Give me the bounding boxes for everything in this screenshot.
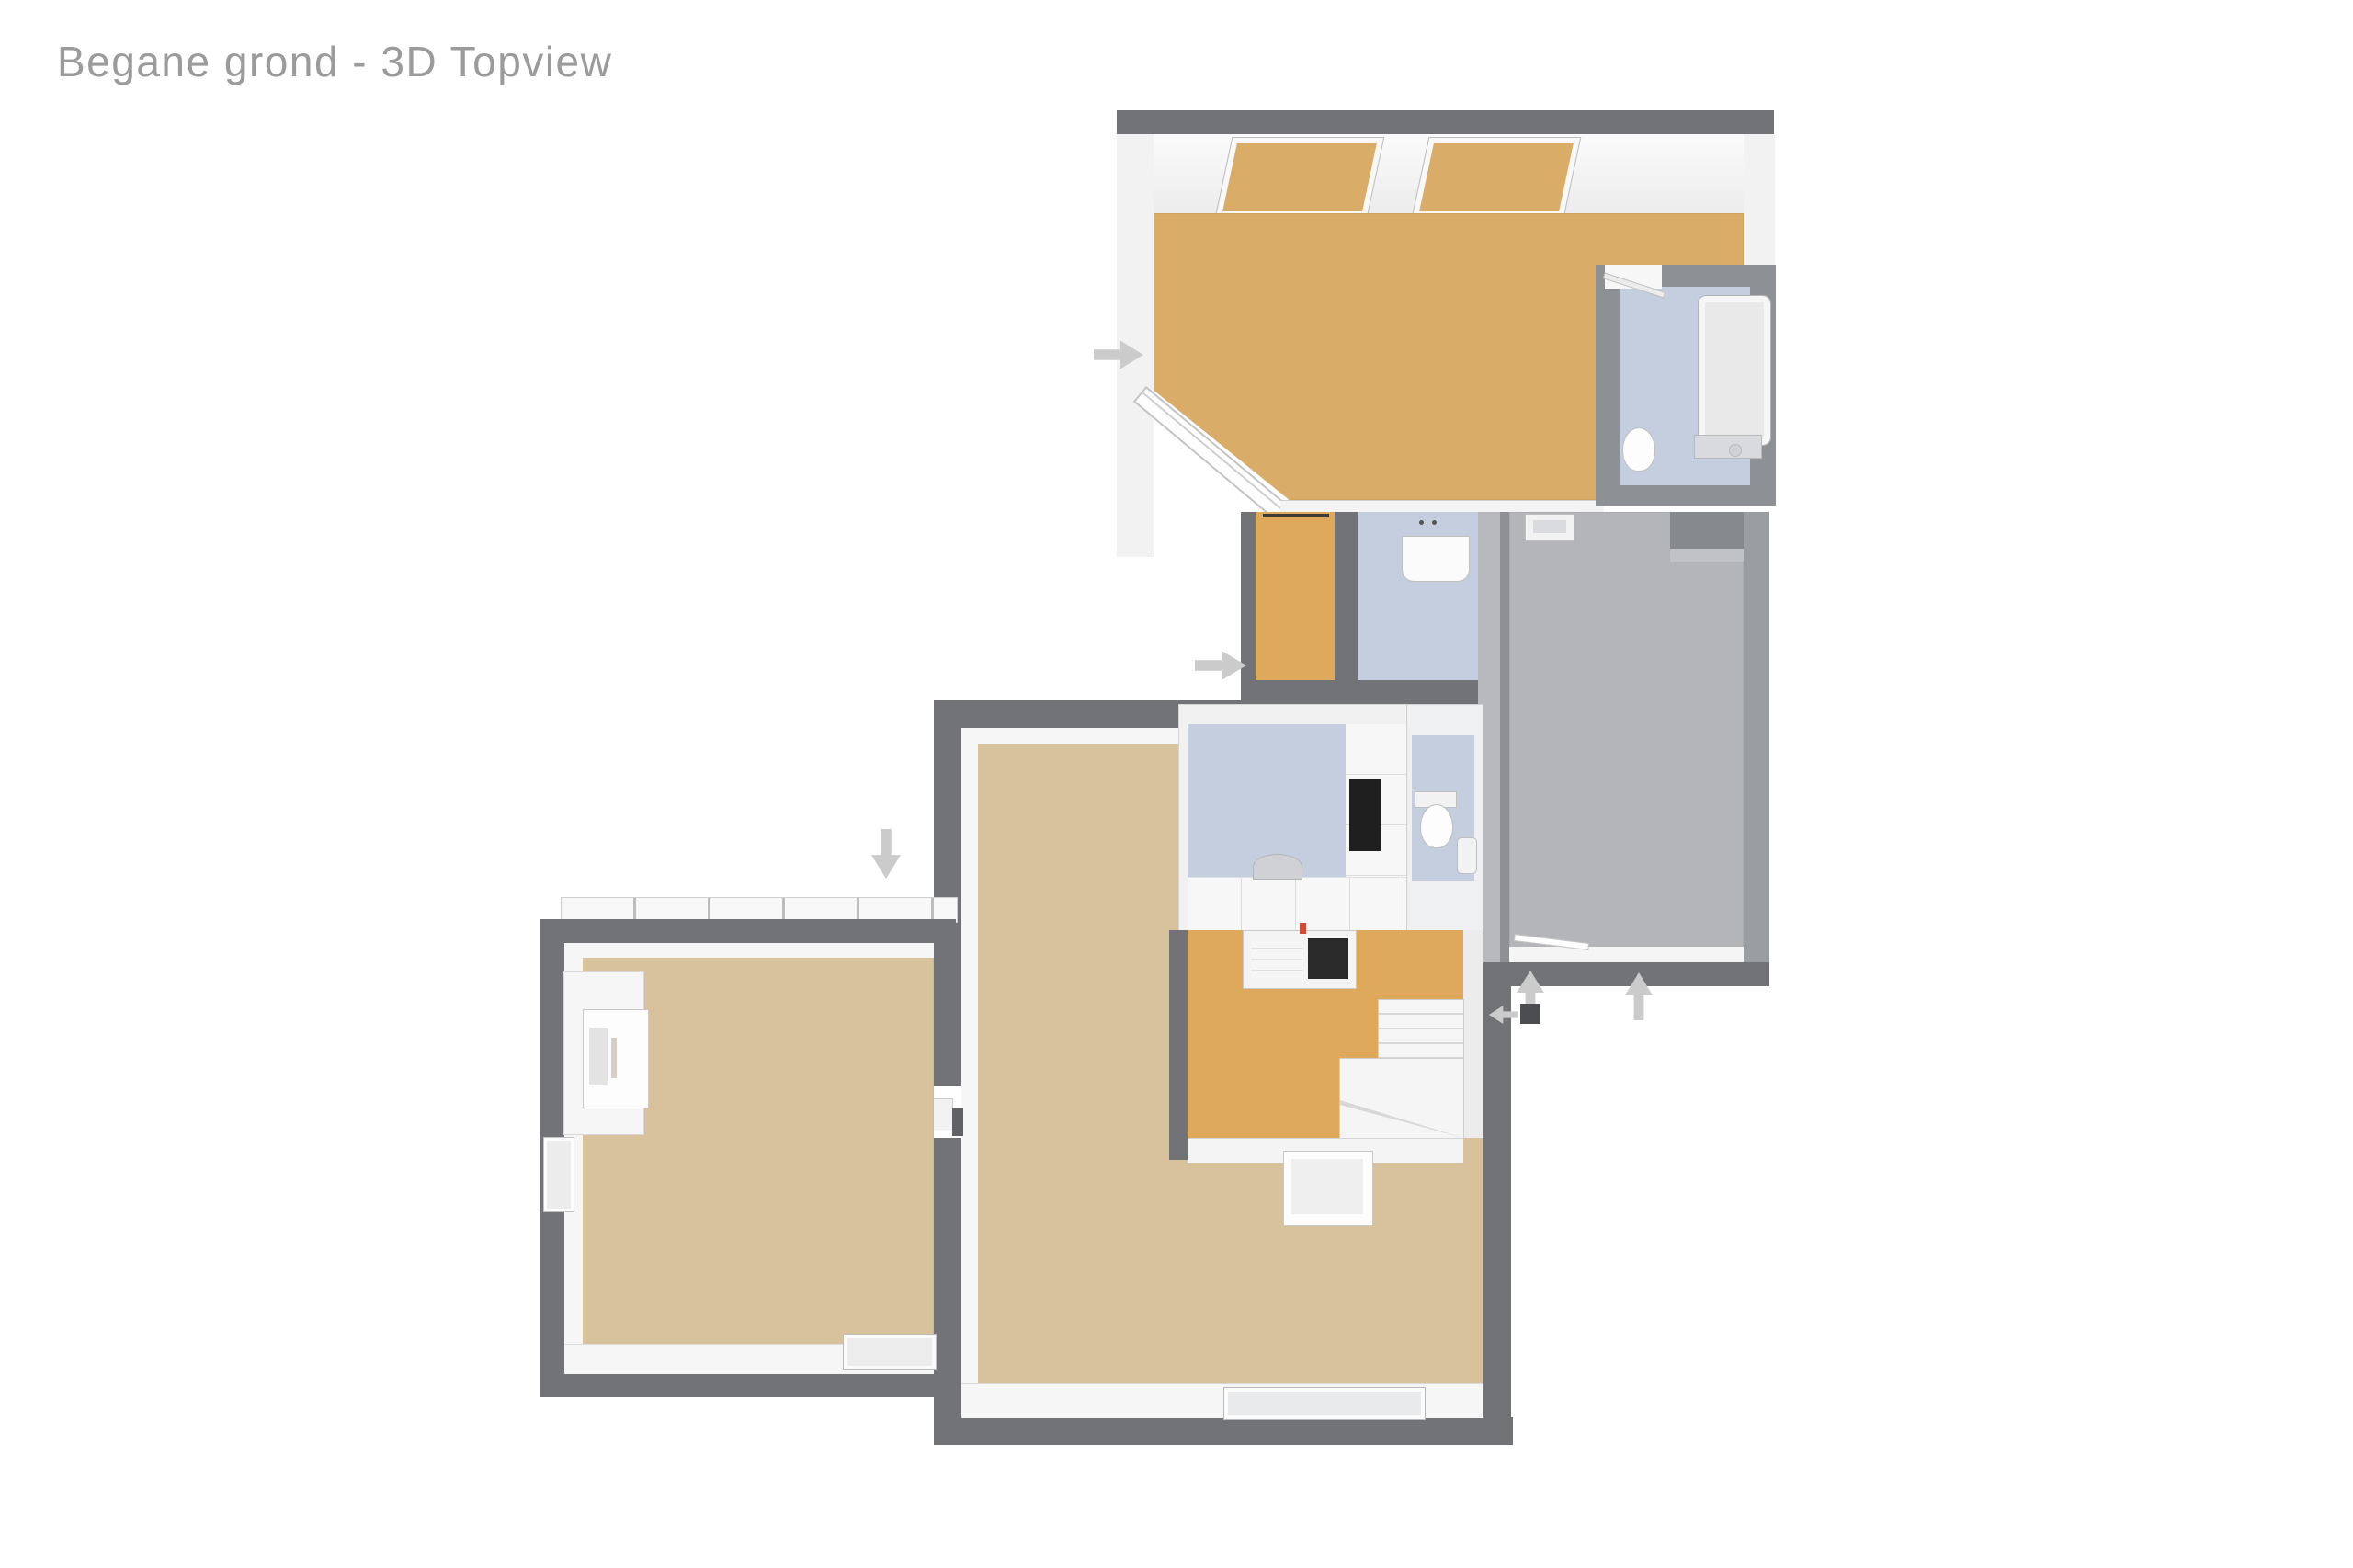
wall-socket-icon — [1419, 520, 1424, 525]
stairs-straight-flight — [1379, 1000, 1463, 1059]
garage-right-wall — [1744, 512, 1769, 962]
top-wall-window-icon — [1216, 138, 1383, 217]
meter-cupboard — [1243, 930, 1357, 989]
faucet-icon — [1730, 445, 1741, 456]
bathtub-shelf — [1695, 436, 1761, 458]
garage-floor — [1509, 512, 1744, 962]
entrance-arrow-right-icon — [1195, 651, 1246, 680]
garage-duct-face — [1670, 549, 1744, 562]
side-room-top-wall — [540, 919, 956, 943]
fireplace-box — [583, 1009, 649, 1108]
side-room-bottom-wall — [540, 1373, 956, 1397]
floorplan-page: Begane grond - 3D Topview — [0, 0, 2353, 1568]
meter-red-marker — [1300, 923, 1306, 934]
living-bottom-window-icon — [1224, 1388, 1425, 1419]
fireplace-flue-line — [611, 1038, 617, 1078]
front-door-marker-icon — [1520, 1004, 1540, 1024]
meter-cupboard-shelves — [1251, 938, 1302, 979]
bathtub-icon — [1699, 296, 1770, 445]
toilet-sink-icon — [1458, 838, 1476, 873]
kitchen-counter-bottom — [1188, 877, 1406, 931]
side-room-top-inner-wall — [564, 943, 934, 958]
page-title: Begane grond - 3D Topview — [57, 37, 612, 86]
top-room-right-outer-wall — [1744, 134, 1775, 272]
stairs-winder — [1340, 1059, 1463, 1138]
toilet-icon — [1421, 805, 1452, 847]
garage-top-door-step — [1533, 520, 1566, 533]
garage-bottom-threshold — [1509, 947, 1744, 962]
shower-sink-icon — [1403, 537, 1469, 581]
entrance-porch-niche — [1283, 1151, 1373, 1226]
corridor-left-wall — [1241, 512, 1256, 703]
entrance-arrow-down-icon — [871, 829, 901, 879]
entrance-porch-inner — [1291, 1159, 1363, 1214]
top-room-top-wall — [1117, 110, 1774, 134]
living-bottom-wall — [934, 1417, 1513, 1445]
hallway-right-inner-wall — [1463, 930, 1483, 1138]
top-wall-window-icon — [1413, 138, 1580, 217]
meter-cupboard-dark-unit — [1308, 938, 1348, 979]
side-room-left-window-icon — [544, 1138, 574, 1211]
cooktop-icon — [1349, 779, 1381, 851]
toilet-icon — [1623, 428, 1654, 471]
living-left-inner-wall — [961, 744, 978, 1388]
doorway-step-dark — [952, 1108, 963, 1136]
corridor-floor — [1256, 512, 1335, 703]
wall-socket-icon — [1432, 520, 1437, 525]
living-left-wall — [934, 700, 961, 1445]
kitchen-sink-icon — [1254, 855, 1302, 879]
middle-bottom-wall — [1241, 680, 1507, 704]
garage-left-wall — [1500, 512, 1509, 986]
corridor-door-threshold — [1263, 514, 1329, 517]
garage-top-door-threshold — [1526, 515, 1574, 540]
bathroom-walls — [1596, 265, 1776, 506]
corridor-right-wall — [1335, 512, 1358, 703]
fireplace-niche — [589, 1028, 608, 1085]
living-right-wall — [1483, 962, 1511, 1445]
kitchen-floor — [1188, 724, 1346, 877]
hallway-left-wall — [1169, 930, 1188, 1160]
side-room-floor-mat — [844, 1335, 936, 1369]
